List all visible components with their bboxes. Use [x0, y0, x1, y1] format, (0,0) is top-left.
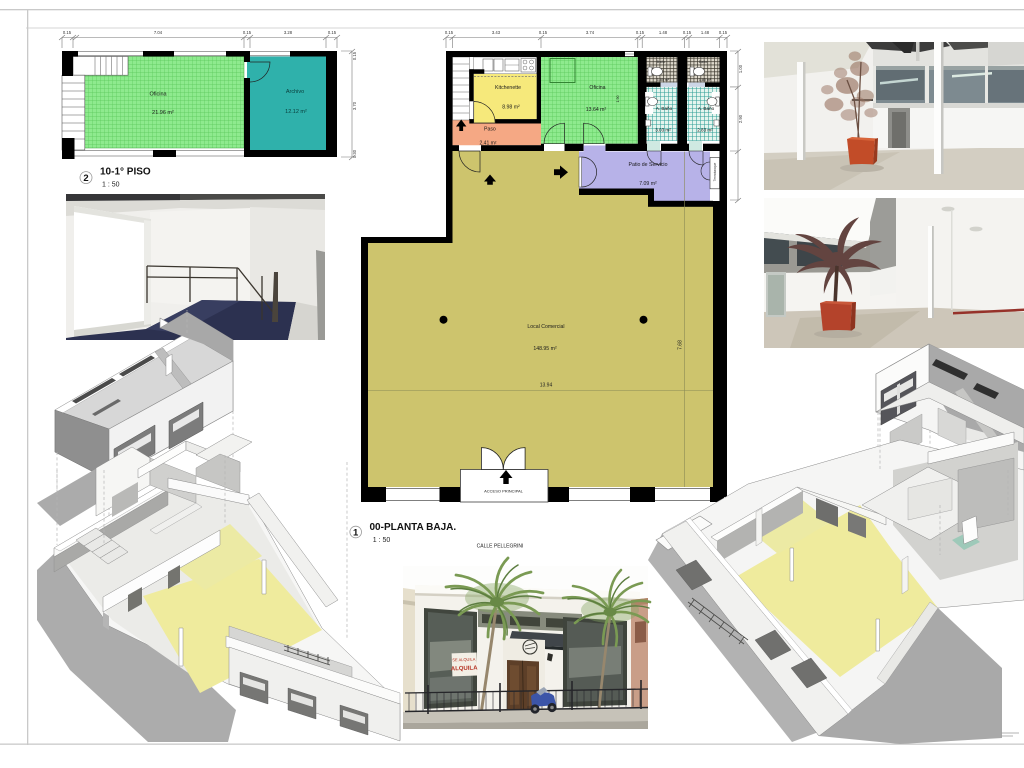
svg-text:Archivo: Archivo — [286, 89, 304, 95]
svg-text:7.09 m²: 7.09 m² — [639, 181, 657, 187]
svg-text:1.00: 1.00 — [738, 64, 743, 73]
svg-text:0.15: 0.15 — [636, 30, 645, 35]
svg-text:SE ALQUILA: SE ALQUILA — [452, 657, 476, 663]
svg-text:0.30: 0.30 — [352, 149, 357, 158]
svg-text:1.90: 1.90 — [616, 96, 620, 103]
svg-text:3.03 m²: 3.03 m² — [655, 128, 671, 133]
svg-text:0.15: 0.15 — [63, 30, 72, 35]
svg-text:Oficina: Oficina — [589, 85, 605, 91]
svg-text:1 : 50: 1 : 50 — [373, 537, 391, 544]
svg-text:2: 2 — [83, 173, 88, 184]
svg-text:A. Baño: A. Baño — [698, 106, 715, 111]
svg-text:00-PLANTA BAJA.: 00-PLANTA BAJA. — [370, 522, 457, 533]
svg-text:Local Comercial: Local Comercial — [527, 324, 564, 330]
svg-text:Paso: Paso — [484, 127, 496, 133]
svg-text:12.12 m²: 12.12 m² — [285, 109, 307, 115]
svg-text:ALQUILA: ALQUILA — [451, 666, 479, 673]
svg-text:Baño: Baño — [657, 60, 665, 64]
svg-text:1.80 m²: 1.80 m² — [699, 78, 712, 82]
svg-text:Kitchenette: Kitchenette — [495, 85, 521, 91]
svg-text:Oficina: Oficina — [149, 92, 167, 98]
svg-text:0.15: 0.15 — [352, 51, 357, 60]
svg-text:Patio de Servicio: Patio de Servicio — [629, 162, 668, 168]
svg-text:3.74: 3.74 — [586, 30, 595, 35]
svg-text:0.15: 0.15 — [328, 30, 337, 35]
svg-text:13.94: 13.94 — [540, 383, 553, 389]
svg-text:148.95 m²: 148.95 m² — [533, 346, 557, 352]
svg-text:21.96 m²: 21.96 m² — [152, 110, 174, 116]
svg-text:1.48: 1.48 — [701, 30, 710, 35]
svg-text:0.15: 0.15 — [683, 30, 692, 35]
svg-text:7.04: 7.04 — [154, 30, 163, 35]
svg-text:1: 1 — [353, 528, 359, 539]
svg-text:ACCESO PRINCIPAL: ACCESO PRINCIPAL — [484, 489, 524, 494]
svg-text:A. Baño: A. Baño — [656, 106, 673, 111]
svg-text:2.90: 2.90 — [738, 114, 743, 123]
svg-text:Baño: Baño — [699, 60, 707, 64]
svg-text:3.28: 3.28 — [284, 30, 293, 35]
svg-text:0.15: 0.15 — [539, 30, 548, 35]
svg-text:10-1° PISO: 10-1° PISO — [100, 167, 151, 178]
svg-text:0.15: 0.15 — [719, 30, 728, 35]
svg-text:7.68: 7.68 — [678, 340, 684, 350]
svg-text:2.83 m²: 2.83 m² — [697, 128, 713, 133]
svg-text:Termotanque: Termotanque — [713, 162, 717, 181]
svg-text:13.64 m²: 13.64 m² — [586, 107, 607, 113]
svg-text:1 : 50: 1 : 50 — [102, 182, 120, 189]
svg-text:0.15: 0.15 — [445, 30, 454, 35]
svg-text:1.80 m²: 1.80 m² — [657, 78, 670, 82]
svg-text:0.15: 0.15 — [243, 30, 252, 35]
svg-text:8.98 m²: 8.98 m² — [502, 105, 520, 111]
svg-text:1.48: 1.48 — [659, 30, 668, 35]
svg-text:3.70: 3.70 — [352, 101, 357, 110]
svg-text:2.41 m²: 2.41 m² — [480, 141, 497, 147]
svg-text:CALLE PELLEGRINI: CALLE PELLEGRINI — [477, 544, 524, 550]
svg-text:3.43: 3.43 — [492, 30, 501, 35]
